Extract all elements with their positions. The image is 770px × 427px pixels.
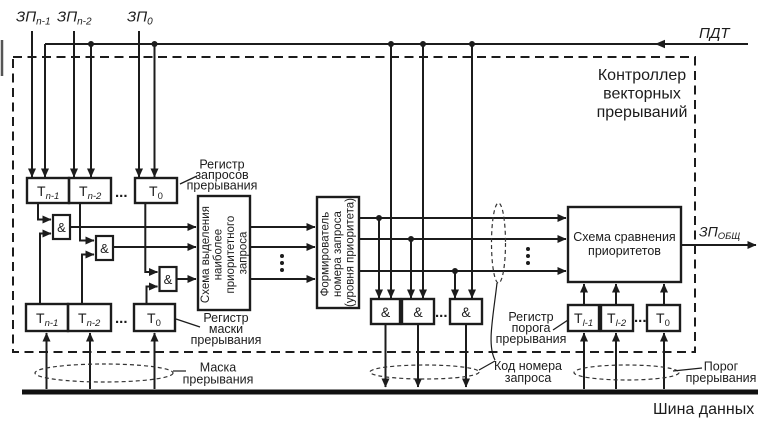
svg-text:&: & [413,304,423,320]
svg-text:Тn-2: Тn-2 [78,310,101,329]
svg-text:Тn-2: Тn-2 [79,183,102,202]
svg-text:&: & [57,220,66,235]
svg-text:Тn-1: Тn-1 [36,310,58,329]
svg-text:&: & [164,272,173,287]
svg-text:приоритетов: приоритетов [588,244,661,258]
svg-text:...: ... [634,309,647,326]
svg-text:Формирователь номера запроса: Формирователь номера запроса (уровня при… [320,198,357,307]
svg-text:прерываний: прерываний [597,104,688,121]
svg-text:Шина данных: Шина данных [653,401,754,418]
svg-text:Тn-1: Тn-1 [37,183,59,202]
svg-text:запроса: запроса [505,371,552,385]
svg-text:прерывания: прерывания [686,371,757,385]
svg-text:ЗП0: ЗП0 [127,9,153,28]
svg-text:прерывания: прерывания [496,332,567,346]
svg-text:&: & [381,304,391,320]
svg-text:ЗПn-2: ЗПn-2 [57,9,92,28]
svg-text:Схема выделения наиболее п: Схема выделения наиболее приоритетного з… [200,203,250,303]
svg-text:ЗПn-1: ЗПn-1 [16,9,51,28]
svg-text:Контроллер: Контроллер [598,67,686,84]
svg-text:Т0: Т0 [149,183,163,202]
svg-text:ЗПОБЩ: ЗПОБЩ [699,224,740,243]
svg-text:...: ... [115,184,128,201]
svg-text:прерывания: прерывания [187,179,258,193]
svg-text:прерывания: прерывания [183,373,254,387]
svg-text:ПДТ: ПДТ [699,25,731,42]
svg-text:&: & [100,241,109,256]
svg-text:Схема сравнения: Схема сравнения [573,230,675,244]
svg-text:векторных: векторных [603,86,681,103]
svg-text:Т0: Т0 [656,310,670,329]
svg-text:&: & [461,304,471,320]
svg-text:Т0: Т0 [147,310,161,329]
svg-text:Тl-2: Тl-2 [607,310,627,329]
svg-text:...: ... [435,304,448,321]
svg-text:Тl-1: Тl-1 [574,310,593,329]
svg-text:...: ... [115,310,128,327]
svg-text:прерывания: прерывания [191,333,262,347]
